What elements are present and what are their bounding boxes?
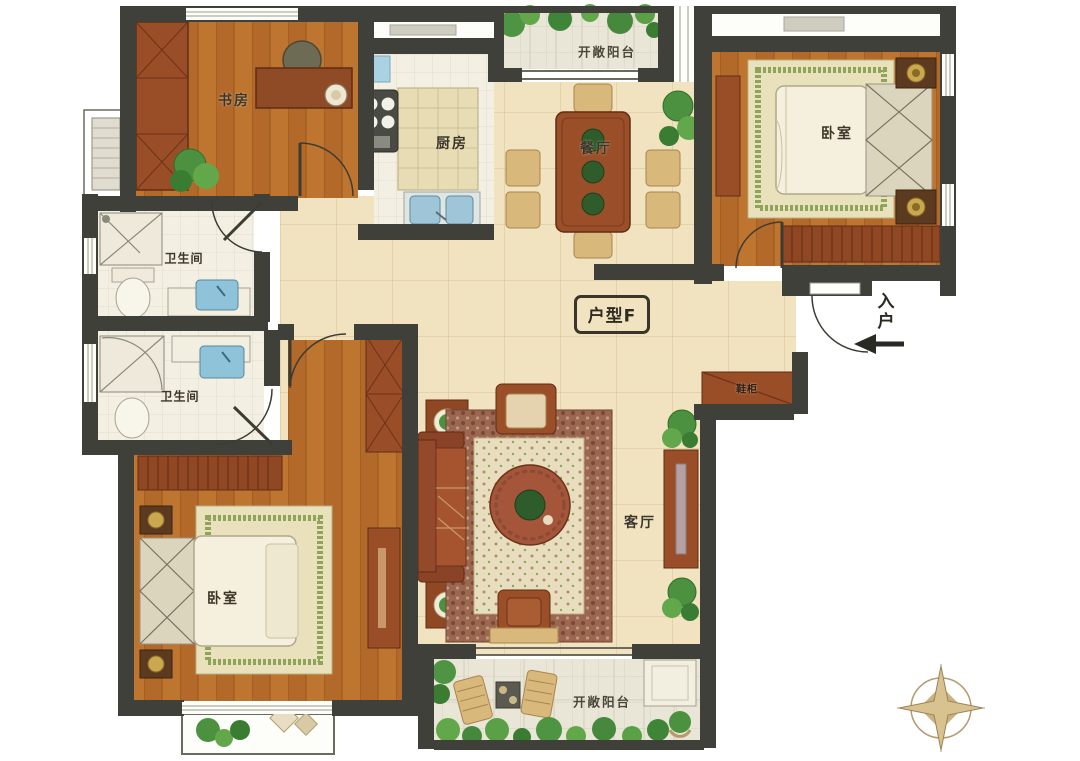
sink <box>200 346 244 378</box>
label-balcony-top: 开敞阳台 <box>578 42 636 61</box>
dining-sliding-door <box>520 71 640 79</box>
dining-chair <box>574 84 612 112</box>
bedroom-right-pillows <box>866 84 932 196</box>
table-centerpiece <box>515 490 545 520</box>
label-living: 客厅 <box>624 512 656 532</box>
label-entry: 入户 <box>872 292 897 332</box>
kitchen-sink-left <box>410 196 440 224</box>
bedroom-left-wardrobe <box>138 456 282 490</box>
label-unit-type: 户型F <box>588 302 637 327</box>
bedroom-right-cabinet <box>716 76 740 196</box>
toilet <box>116 278 150 318</box>
bench <box>490 628 558 643</box>
label-dining: 餐厅 <box>580 138 612 158</box>
entry-door-leaf <box>810 283 860 294</box>
label-kitchen: 厨房 <box>436 133 468 153</box>
tv <box>676 464 686 554</box>
toilet <box>115 398 149 438</box>
sofa <box>418 432 466 582</box>
bedroom-right-wardrobe <box>782 226 940 262</box>
label-bedroom-right: 卧室 <box>821 123 853 143</box>
dining-chair <box>506 192 540 228</box>
dining-chair <box>506 150 540 186</box>
dining-chair <box>646 150 680 186</box>
dining-plate <box>582 161 604 183</box>
label-bathroom-lower: 卫生间 <box>160 388 199 405</box>
dining-plate <box>582 193 604 215</box>
round-table <box>490 465 570 545</box>
kitchen-sink-right <box>446 196 473 224</box>
label-study: 书房 <box>218 90 250 110</box>
floor-plan: 书房 厨房 开敞阳台 餐厅 卧室 卫生间 卫生间 户型F 入户 鞋柜 卧室 客厅… <box>0 0 1080 761</box>
potted-plant <box>669 711 691 733</box>
label-balcony-bottom: 开敞阳台 <box>573 692 631 711</box>
balcony-side-table <box>496 682 520 708</box>
bedroom-left-pillows <box>140 538 194 644</box>
dining-chair <box>646 192 680 228</box>
label-bedroom-left: 卧室 <box>207 588 239 608</box>
sink <box>196 280 238 310</box>
floor-plan-drawing <box>0 0 1080 761</box>
label-bathroom-upper: 卫生间 <box>164 250 203 267</box>
dining-chair <box>574 232 612 258</box>
label-shoe-cabinet: 鞋柜 <box>736 381 758 396</box>
bed-blanket <box>266 544 298 638</box>
compass-icon <box>897 664 985 752</box>
